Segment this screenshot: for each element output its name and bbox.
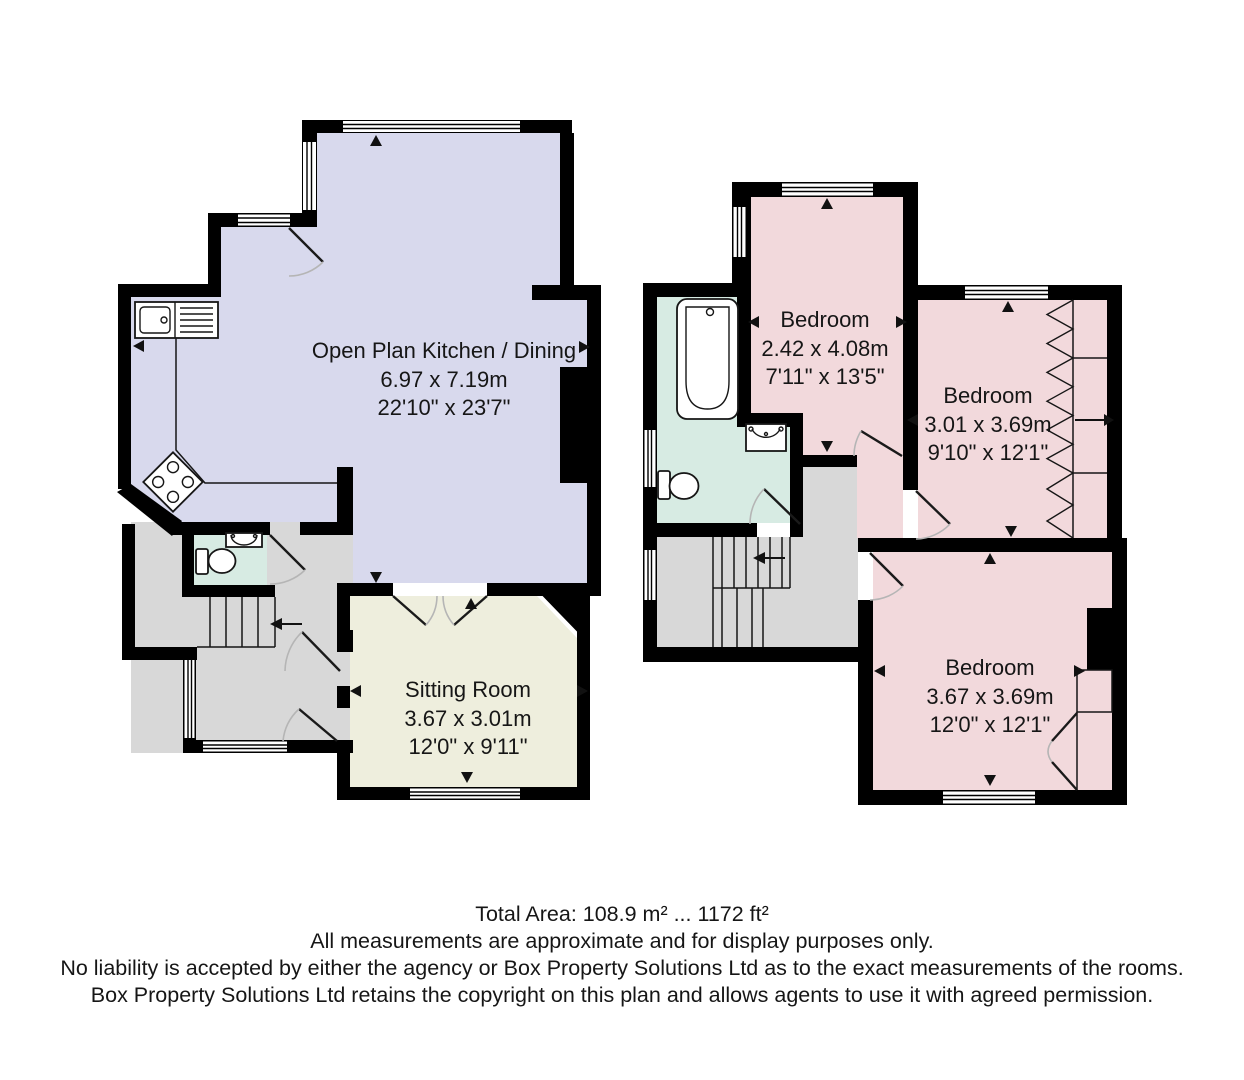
room-name: Open Plan Kitchen / Dining [312, 338, 576, 363]
room-metric: 3.67 x 3.01m [404, 706, 531, 731]
window [343, 121, 520, 132]
room-imperial: 12'0" x 9'11" [408, 734, 527, 759]
doorway-vestibule [857, 455, 903, 538]
bedroom3-label: Bedroom 3.67 x 3.69m 12'0" x 12'1" [926, 655, 1053, 737]
bedroom1-label: Bedroom 2.42 x 4.08m 7'11" x 13'5" [761, 307, 888, 389]
room-imperial: 22'10" x 23'7" [378, 395, 511, 420]
room-landing2 [803, 467, 858, 537]
room-name: Sitting Room [405, 677, 531, 702]
window [238, 215, 290, 226]
ground-floor-plan: Open Plan Kitchen / Dining 6.97 x 7.19m … [117, 120, 601, 800]
disclaimer-line: Box Property Solutions Ltd retains the c… [91, 983, 1153, 1007]
first-floor-plan: Bedroom 2.42 x 4.08m 7'11" x 13'5" Bedro… [643, 182, 1127, 805]
chimney-breast [1087, 608, 1112, 670]
disclaimer-line: All measurements are approximate and for… [310, 929, 933, 953]
room-metric: 2.42 x 4.08m [761, 336, 888, 361]
room-metric: 3.01 x 3.69m [924, 412, 1051, 437]
window [203, 742, 287, 752]
bathtub-icon [677, 299, 738, 419]
disclaimer-line: No liability is accepted by either the a… [60, 956, 1183, 980]
window [734, 207, 746, 257]
room-imperial: 12'0" x 12'1" [930, 712, 1051, 737]
window [185, 660, 195, 738]
room-imperial: 9'10" x 12'1" [928, 440, 1049, 465]
bedroom2-label: Bedroom 3.01 x 3.69m 9'10" x 12'1" [924, 383, 1051, 465]
room-metric: 3.67 x 3.69m [926, 684, 1053, 709]
room-name: Bedroom [780, 307, 869, 332]
room-name: Bedroom [943, 383, 1032, 408]
floorplan-drawing: Open Plan Kitchen / Dining 6.97 x 7.19m … [0, 0, 1244, 1080]
room-name: Bedroom [945, 655, 1034, 680]
window [943, 792, 1035, 804]
window [965, 287, 1048, 299]
sitting-label: Sitting Room 3.67 x 3.01m 12'0" x 9'11" [404, 677, 531, 759]
footer-disclaimer: Total Area: 108.9 m² ... 1172 ft² All me… [60, 902, 1183, 1007]
wc-basin-icon [226, 533, 262, 547]
window [303, 142, 316, 210]
window [645, 430, 656, 487]
wc-toilet-icon [196, 549, 236, 574]
bathroom-basin-icon [746, 424, 786, 451]
total-area-text: Total Area: 108.9 m² ... 1172 ft² [475, 902, 769, 926]
floorplan-page: Open Plan Kitchen / Dining 6.97 x 7.19m … [0, 0, 1244, 1080]
room-metric: 6.97 x 7.19m [380, 367, 507, 392]
window [410, 789, 520, 799]
kitchen-sink-icon [135, 302, 218, 338]
window [782, 184, 873, 196]
room-imperial: 7'11" x 13'5" [765, 364, 884, 389]
bathroom-toilet-icon [658, 471, 699, 499]
window [645, 550, 656, 600]
